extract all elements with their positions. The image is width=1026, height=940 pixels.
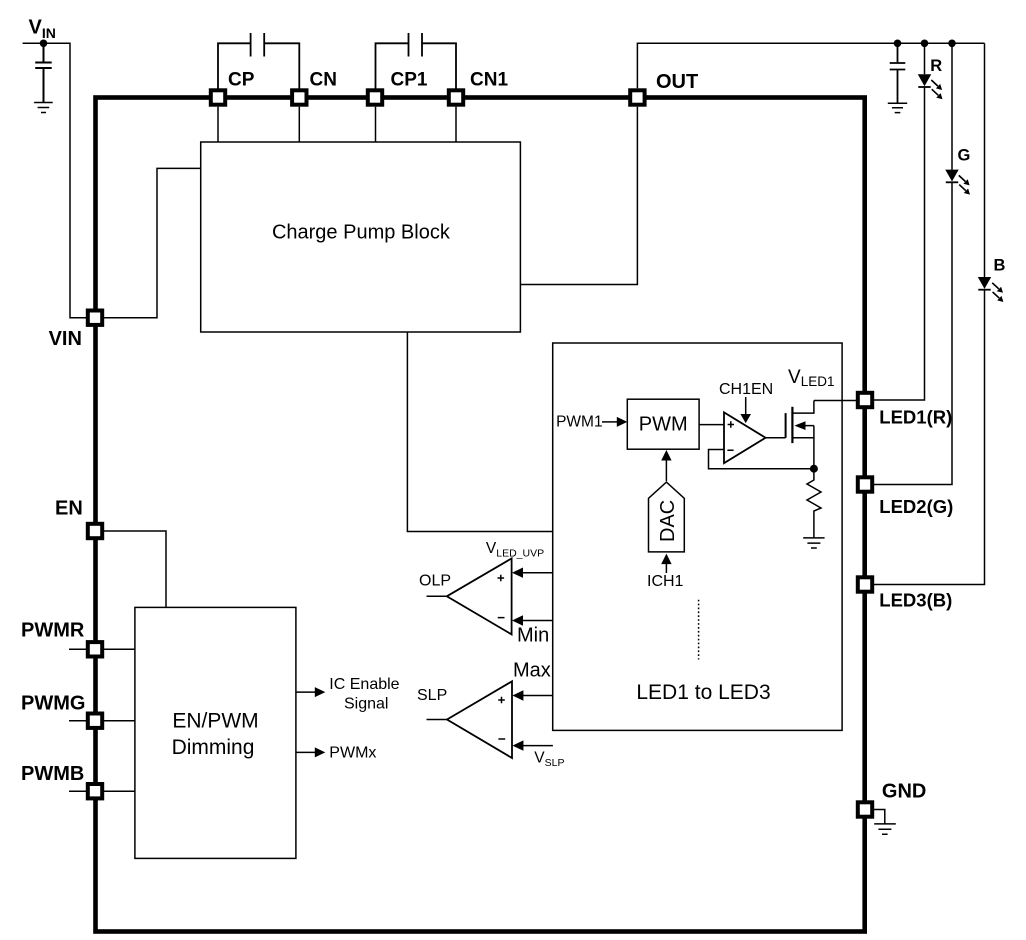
svg-text:PWMG: PWMG — [21, 693, 85, 715]
svg-text:DAC: DAC — [657, 500, 679, 542]
svg-text:CP1: CP1 — [391, 70, 428, 91]
svg-text:CN: CN — [310, 70, 337, 91]
svg-text:Charge Pump Block: Charge Pump Block — [272, 222, 451, 244]
svg-text:VIN: VIN — [29, 17, 56, 42]
svg-text:VSLP: VSLP — [534, 750, 564, 770]
svg-text:VIN: VIN — [49, 328, 82, 350]
svg-text:PWMB: PWMB — [21, 763, 84, 785]
svg-text:OLP: OLP — [419, 573, 451, 590]
svg-text:GND: GND — [882, 781, 926, 803]
svg-text:VLED1: VLED1 — [788, 367, 834, 389]
svg-text:PWM: PWM — [639, 414, 688, 436]
svg-text:CP: CP — [228, 70, 255, 91]
svg-text:LED3(B): LED3(B) — [879, 590, 952, 611]
svg-text:PWM1: PWM1 — [556, 414, 603, 431]
svg-text:Max: Max — [513, 660, 551, 682]
svg-text:EN: EN — [55, 498, 83, 520]
svg-text:EN/PWM: EN/PWM — [172, 710, 258, 733]
svg-text:ICH1: ICH1 — [647, 573, 684, 590]
svg-text:LED1(R): LED1(R) — [879, 407, 952, 428]
svg-text:PWMR: PWMR — [21, 620, 85, 642]
svg-text:IC Enable: IC Enable — [329, 676, 399, 693]
svg-text:CN1: CN1 — [470, 70, 508, 91]
svg-text:Min: Min — [517, 625, 549, 647]
svg-text:G: G — [958, 147, 971, 165]
svg-text:SLP: SLP — [417, 687, 447, 704]
svg-text:LED1 to LED3: LED1 to LED3 — [636, 681, 770, 704]
svg-text:Signal: Signal — [344, 696, 388, 713]
svg-text:VLED_UVP: VLED_UVP — [486, 540, 544, 560]
svg-text:LED2(G): LED2(G) — [879, 496, 953, 517]
svg-text:OUT: OUT — [656, 71, 698, 93]
svg-text:Dimming: Dimming — [172, 736, 255, 759]
svg-text:PWMx: PWMx — [329, 744, 376, 761]
svg-text:R: R — [930, 57, 942, 75]
svg-text:CH1EN: CH1EN — [719, 381, 773, 398]
svg-text:B: B — [994, 257, 1006, 275]
